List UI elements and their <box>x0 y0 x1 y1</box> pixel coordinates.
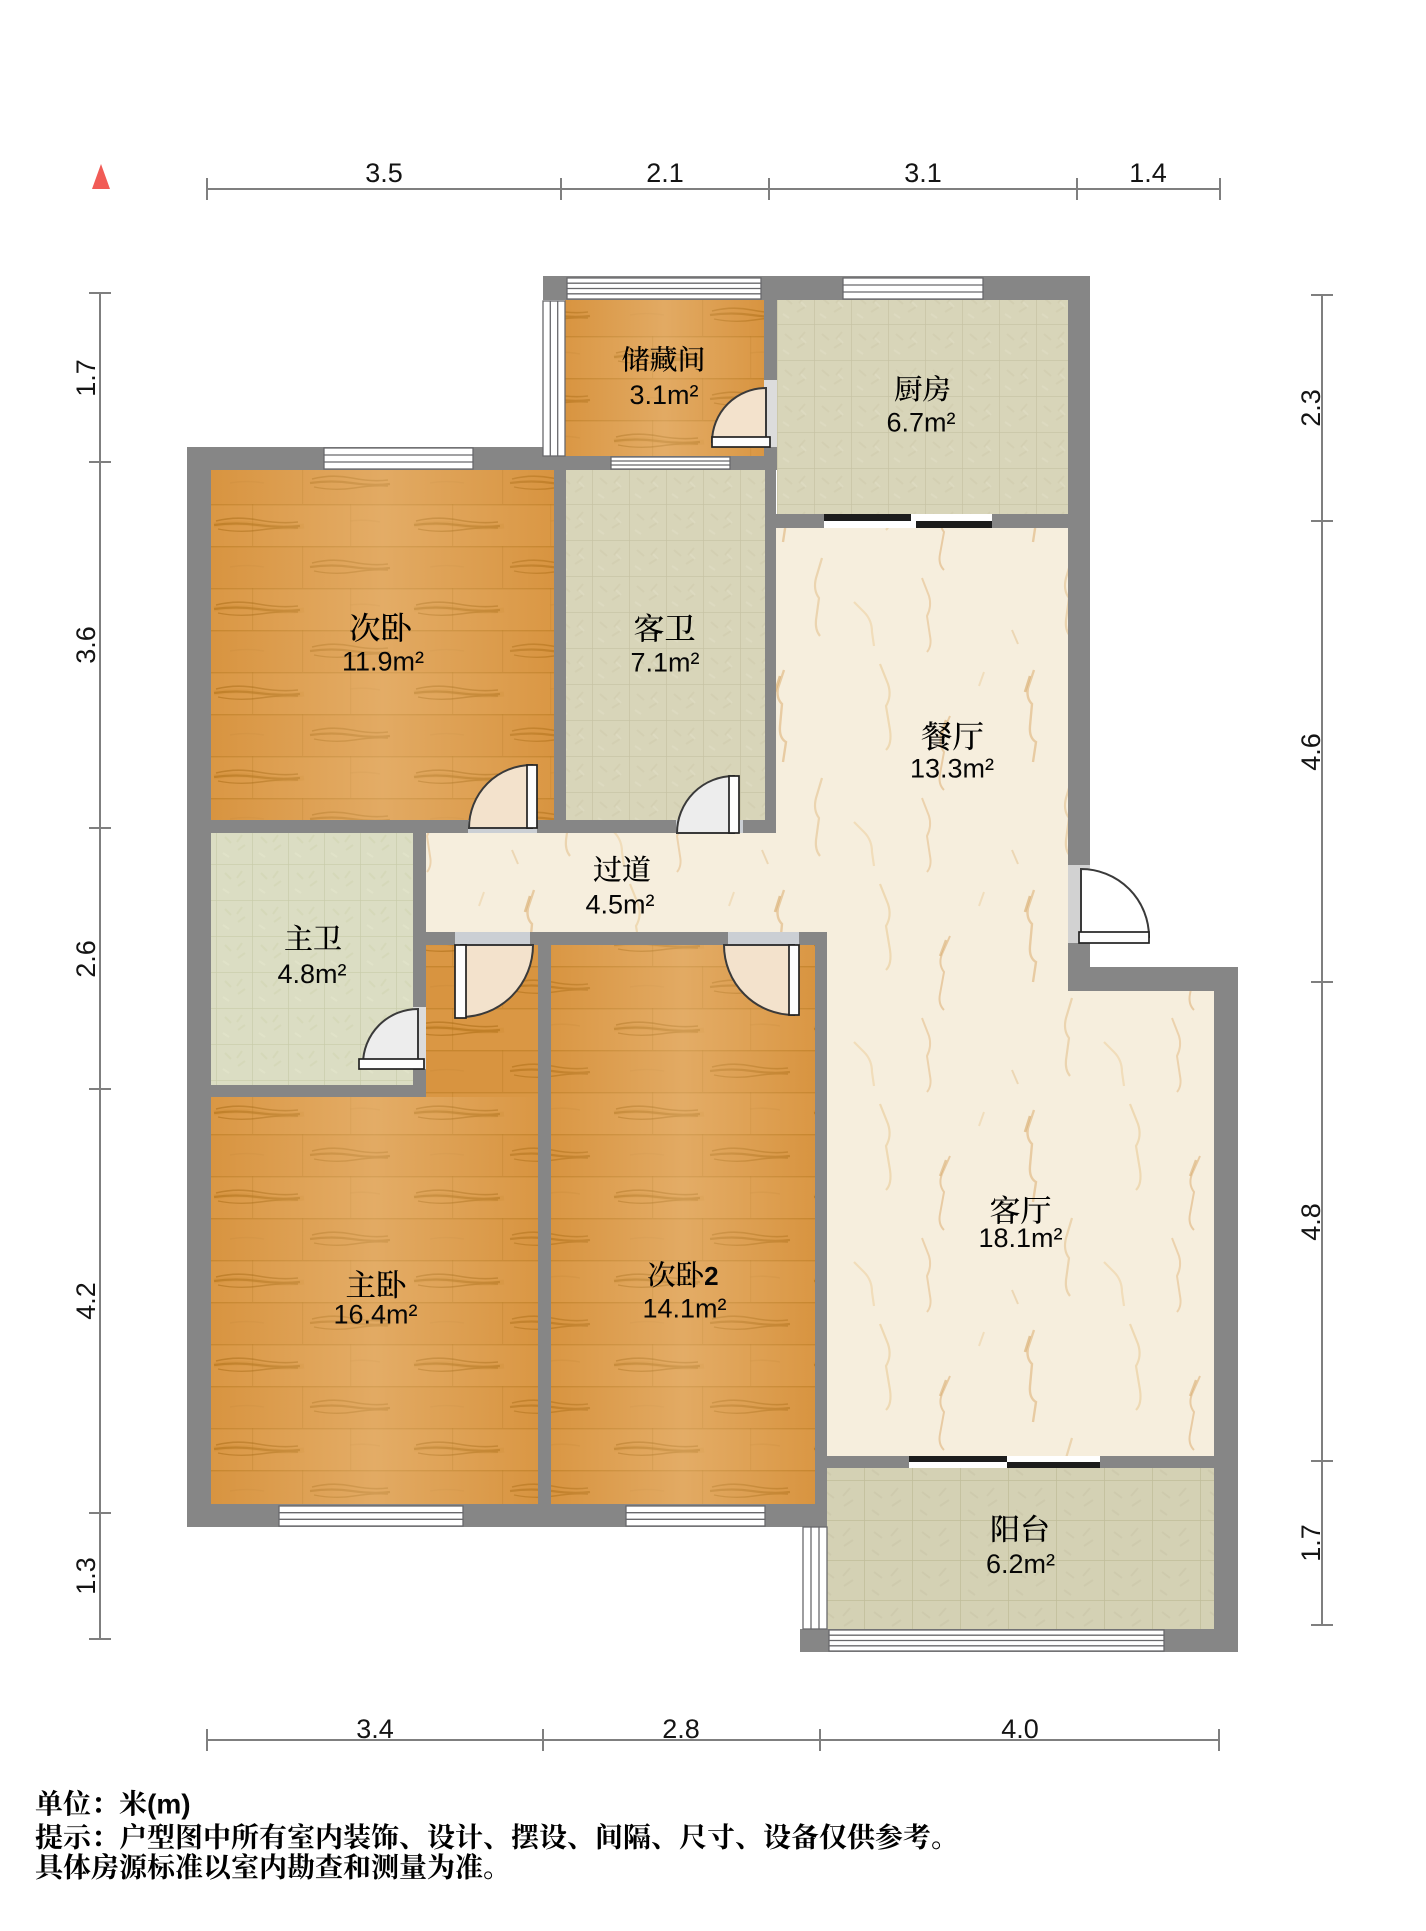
svg-text:2.8: 2.8 <box>662 1714 700 1744</box>
svg-text:3.1m²: 3.1m² <box>629 380 698 410</box>
svg-text:4.8: 4.8 <box>1296 1203 1326 1241</box>
svg-text:1.7: 1.7 <box>1296 1524 1326 1562</box>
svg-text:7.1m²: 7.1m² <box>630 648 699 678</box>
svg-text:16.4m²: 16.4m² <box>333 1300 417 1330</box>
svg-text:3.5: 3.5 <box>365 158 403 188</box>
svg-text:18.1m²: 18.1m² <box>978 1223 1062 1253</box>
svg-text:11.9m²: 11.9m² <box>342 647 424 677</box>
svg-text:4.6: 4.6 <box>1296 733 1326 771</box>
svg-text:14.1m²: 14.1m² <box>642 1294 726 1324</box>
svg-text:1.4: 1.4 <box>1129 158 1167 188</box>
svg-text:3.6: 3.6 <box>71 626 101 664</box>
svg-text:4.2: 4.2 <box>71 1282 101 1320</box>
svg-text:2: 2 <box>704 1261 718 1291</box>
svg-text:1.3: 1.3 <box>71 1557 101 1595</box>
svg-text:(m): (m) <box>147 1789 191 1820</box>
svg-text:4.0: 4.0 <box>1001 1714 1039 1744</box>
svg-text:1.7: 1.7 <box>71 359 101 397</box>
svg-text:2.1: 2.1 <box>646 158 684 188</box>
svg-text:6.7m²: 6.7m² <box>886 408 955 438</box>
svg-text:3.1: 3.1 <box>904 158 942 188</box>
svg-text:2.6: 2.6 <box>71 940 101 978</box>
svg-text:6.2m²: 6.2m² <box>986 1549 1055 1579</box>
svg-text:4.8m²: 4.8m² <box>277 959 346 989</box>
svg-text:2.3: 2.3 <box>1296 389 1326 427</box>
svg-text:4.5m²: 4.5m² <box>585 890 654 920</box>
svg-text:3.4: 3.4 <box>356 1714 394 1744</box>
svg-text:13.3m²: 13.3m² <box>910 754 994 784</box>
